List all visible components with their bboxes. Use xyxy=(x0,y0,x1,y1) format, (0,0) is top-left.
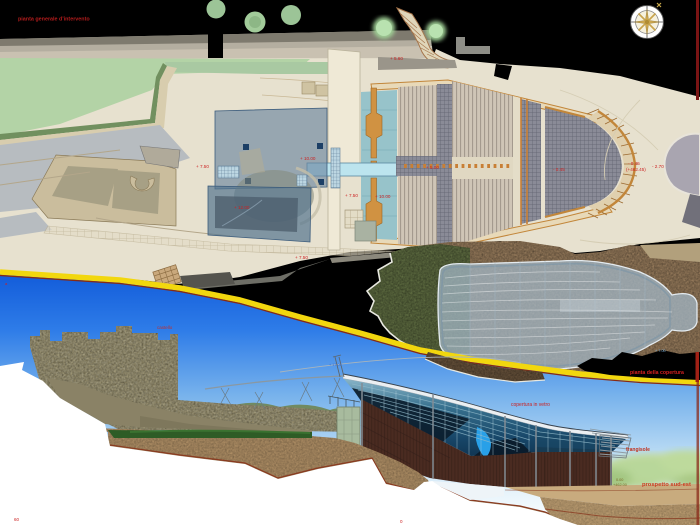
svg-text:copertura in vetro: copertura in vetro xyxy=(511,402,550,408)
svg-text:(+462.45): (+462.45) xyxy=(626,167,646,172)
svg-text:60: 60 xyxy=(14,517,20,522)
svg-text:- 0.45: - 0.45 xyxy=(553,167,565,172)
svg-text:- 2.70: - 2.70 xyxy=(652,164,664,169)
svg-text:+ 5.60: + 5.60 xyxy=(390,56,403,61)
svg-text:0.00: 0.00 xyxy=(616,478,623,482)
svg-text:+ 5.00: + 5.00 xyxy=(426,165,439,170)
svg-text:- 0.45: - 0.45 xyxy=(628,161,640,166)
svg-text:frangisole: frangisole xyxy=(626,447,650,453)
svg-text:+462.00: +462.00 xyxy=(613,483,627,487)
svg-text:prospetto sud-est: prospetto sud-est xyxy=(642,482,691,488)
svg-text:+ 12.00: + 12.00 xyxy=(234,205,250,210)
svg-text:castello: castello xyxy=(157,325,173,330)
svg-text:+ 7.50: + 7.50 xyxy=(345,193,358,198)
svg-text:pianta della copertura: pianta della copertura xyxy=(630,370,684,376)
svg-text:+ 7.50: + 7.50 xyxy=(295,255,308,260)
svg-text:+ 10.00: + 10.00 xyxy=(300,156,316,161)
svg-text:+ 7.00: + 7.00 xyxy=(655,349,666,353)
svg-text:+ 17.00: + 17.00 xyxy=(329,363,342,367)
svg-text:+ 7.50: + 7.50 xyxy=(196,164,209,169)
svg-text:+ 10.00: + 10.00 xyxy=(375,194,391,199)
svg-text:pianta generale d'intervento: pianta generale d'intervento xyxy=(18,17,90,23)
